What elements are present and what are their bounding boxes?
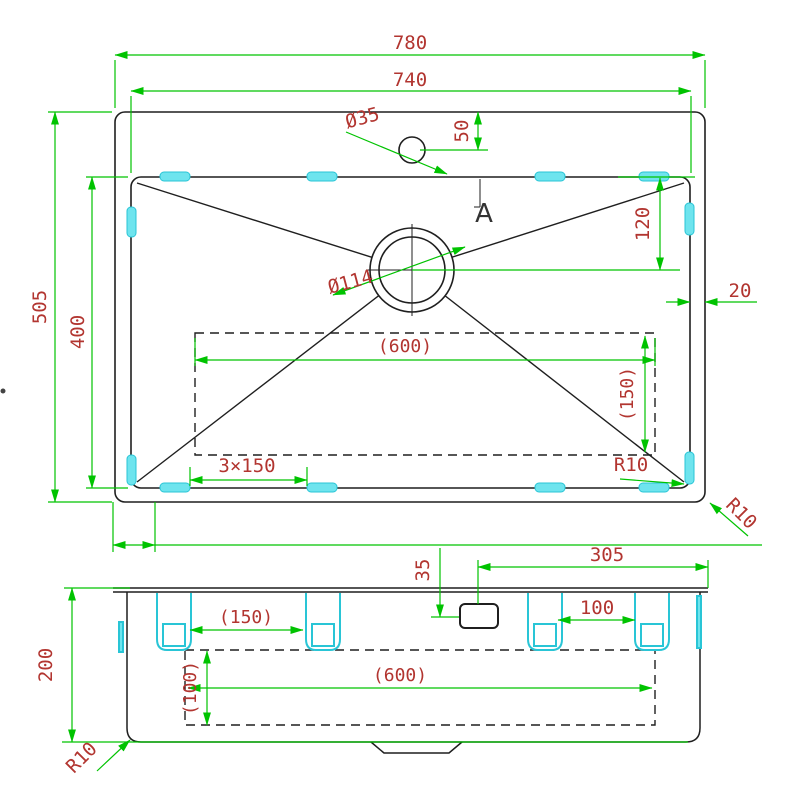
mounting-clip [127,207,136,237]
dim-faucet-dia: Ø35 [343,103,382,133]
mounting-clips-top-view [127,172,694,492]
dim-bowl-radius: R10 [614,454,648,476]
section-label: A [475,199,493,229]
mounting-clip [160,483,190,492]
dim-cutout-width-front: (600) [373,665,427,686]
dimension-labels: 780 740 505 400 50 Ø35 Ø114 120 20 (600)… [29,32,761,778]
clip-block [163,624,185,646]
technical-drawing-page: 780 740 505 400 50 Ø35 Ø114 120 20 (600)… [0,0,792,800]
clip-edge [119,622,123,652]
dim-bowl-depth: 400 [67,315,89,349]
dim-clip-pitch-right: 100 [580,597,614,619]
clip-block [641,624,663,646]
drain-boss [371,742,462,753]
dim-cutout-depth: (150) [617,367,638,421]
mounting-clip [685,452,694,484]
leader-faucet-dia [346,132,447,174]
dim-cutout-width: (600) [378,336,432,357]
dim-clip-pitch: 3×150 [218,455,275,477]
mounting-clip [639,483,669,492]
clip-block [534,624,556,646]
mounting-clip [685,203,694,235]
mounting-clip [307,172,337,181]
dim-front-radius: R10 [62,738,102,778]
dim-overflow-drop: 35 [412,559,434,582]
dim-clip-pitch-left: (150) [219,607,273,628]
mounting-clip [127,455,136,485]
page-mark [1,389,6,394]
dim-bowl-width: 740 [393,69,427,91]
mounting-clip [535,172,565,181]
dim-corner-radius: R10 [721,494,761,534]
dim-cutout-depth-front: (100) [180,661,201,715]
dim-faucet-offset: 50 [451,120,473,143]
sink-technical-drawing: 780 740 505 400 50 Ø35 Ø114 120 20 (600)… [0,0,792,800]
mounting-clip [535,483,565,492]
dim-rim-gap: 20 [729,280,752,302]
mounting-clip [307,483,337,492]
dim-depth: 200 [35,648,57,682]
dim-overall-width: 780 [393,32,427,54]
dim-overall-depth: 505 [29,290,51,324]
overflow-hole [460,604,498,628]
leader-front-radius [97,740,130,771]
mounting-clip [160,172,190,181]
dim-drain-dia: Ø114 [325,266,375,299]
dim-overflow-offset: 305 [590,544,624,566]
clip-edge [697,596,701,648]
top-view [115,112,705,502]
dim-drain-offset: 120 [632,207,654,241]
clip-block [312,624,334,646]
